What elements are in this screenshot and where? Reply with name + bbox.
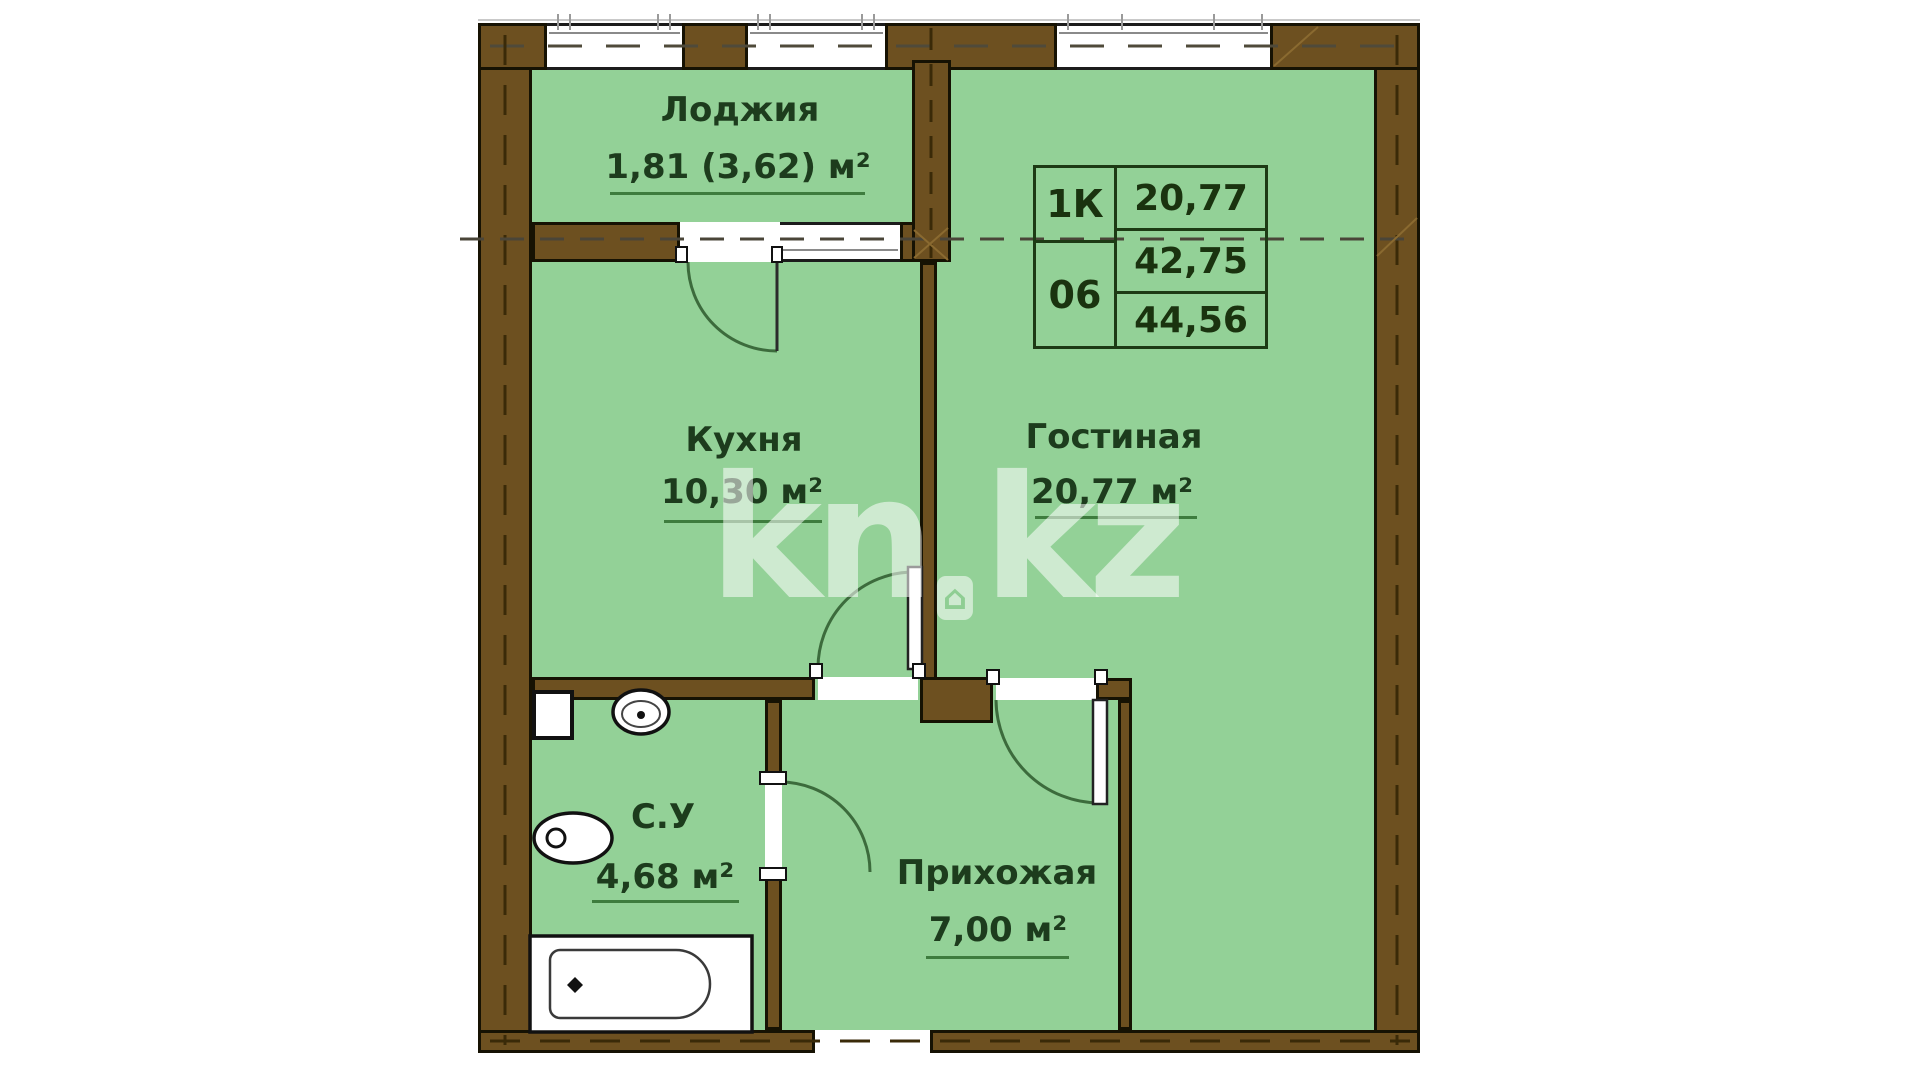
window-loggia-kitchen [780,222,900,262]
wall-top-header [885,23,1057,70]
room-label-loggia: Лоджия [661,90,820,130]
room-area-bathroom: 4,68 м² [596,857,734,897]
wall-kitchen-bathroom [532,677,815,700]
door-opening-living [996,678,1096,700]
watermark-prefix: kn [709,454,927,624]
room-label-bathroom: С.У [631,797,695,837]
house-dot-icon: ⌂ [937,576,973,620]
unit-info-right-column: 20,77 42,75 44,56 [1117,168,1265,346]
wall-bathroom-hallway-upper [765,700,782,782]
pier-hallway [920,677,993,723]
wall-bottom-right [930,1030,1420,1053]
watermark: kn ⌂ kz [709,454,1179,624]
underline-loggia [610,192,865,195]
unit-total-area: 44,56 [1117,294,1265,346]
unit-info-table: 1К 06 20,77 42,75 44,56 [1033,165,1268,349]
room-area-loggia: 1,81 (3,62) м² [605,147,870,187]
floorplan: Лоджия 1,81 (3,62) м² Кухня 10,30 м² Гос… [0,0,1920,1080]
wall-bottom-left [478,1030,815,1053]
unit-number: 06 [1036,243,1114,346]
room-area-hallway: 7,00 м² [929,910,1067,950]
wall-top-corner [1270,23,1420,70]
wall-loggia-left [532,222,680,262]
room-label-hallway: Прихожая [897,853,1098,893]
door-opening-loggia [680,222,780,262]
unit-area-no-loggia: 42,75 [1117,231,1265,294]
wall-bathroom-hallway-lower [765,872,782,1030]
underline-hallway [926,956,1069,959]
door-opening-bathroom [765,782,782,872]
wall-top-pier-b [682,23,748,70]
watermark-suffix: kz [983,454,1179,624]
wall-hallway-living-top [1096,678,1132,700]
window-loggia-2 [748,23,885,70]
underline-bathroom [592,900,739,903]
door-opening-kitchen [818,677,918,700]
wall-hallway-living [1118,700,1132,1030]
wall-top-pier-a [478,23,547,70]
window-living [1057,23,1270,70]
wall-left [478,23,532,1053]
unit-info-left-column: 1К 06 [1036,168,1117,346]
pier-loggia-living [912,60,951,262]
unit-living-area: 20,77 [1117,168,1265,231]
window-loggia-1 [547,23,682,70]
unit-type: 1К [1036,168,1114,243]
wall-right [1374,23,1420,1053]
entrance-opening [815,1030,930,1053]
